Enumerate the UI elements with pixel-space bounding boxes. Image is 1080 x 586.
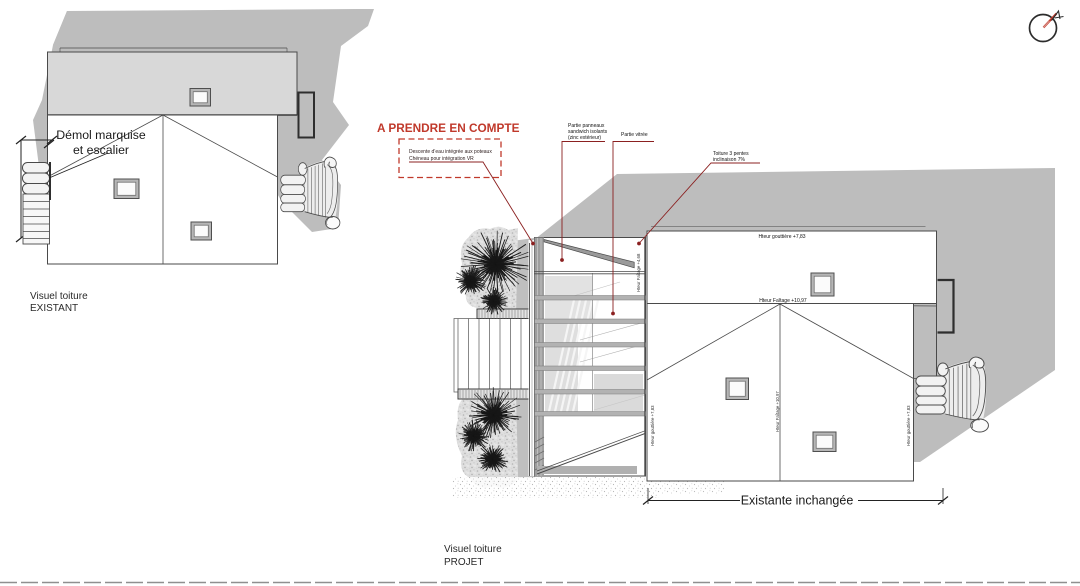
svg-text:Chéneau pour intégration VR: Chéneau pour intégration VR — [409, 156, 474, 162]
svg-text:Hteur Faîtage +4,68: Hteur Faîtage +4,68 — [636, 253, 641, 292]
svg-text:A PRENDRE EN COMPTE: A PRENDRE EN COMPTE — [377, 121, 520, 135]
svg-text:Visuel toiture: Visuel toiture — [444, 544, 502, 555]
svg-text:Démol marquise: Démol marquise — [56, 128, 146, 142]
svg-text:Hteur gouttière +7,83: Hteur gouttière +7,83 — [758, 234, 805, 240]
svg-text:PROJET: PROJET — [444, 557, 483, 568]
svg-text:Descente d’eau intégrée aux po: Descente d’eau intégrée aux poteaux — [409, 149, 492, 155]
svg-text:et escalier: et escalier — [73, 143, 129, 157]
svg-text:Hteur gouttière +7,83: Hteur gouttière +7,83 — [650, 405, 655, 446]
svg-text:Hteur gouttière +7,83: Hteur gouttière +7,83 — [906, 405, 911, 446]
svg-text:Visuel toiture: Visuel toiture — [30, 291, 88, 302]
svg-text:Hteur Faîtage +10,97: Hteur Faîtage +10,97 — [775, 391, 780, 432]
svg-text:Partie vitrée: Partie vitrée — [621, 132, 648, 138]
svg-text:(zinc extérieur): (zinc extérieur) — [568, 135, 601, 141]
svg-text:inclinaison 7%: inclinaison 7% — [713, 157, 746, 163]
svg-text:EXISTANT: EXISTANT — [30, 303, 78, 314]
svg-text:Existante inchangée: Existante inchangée — [741, 494, 854, 508]
